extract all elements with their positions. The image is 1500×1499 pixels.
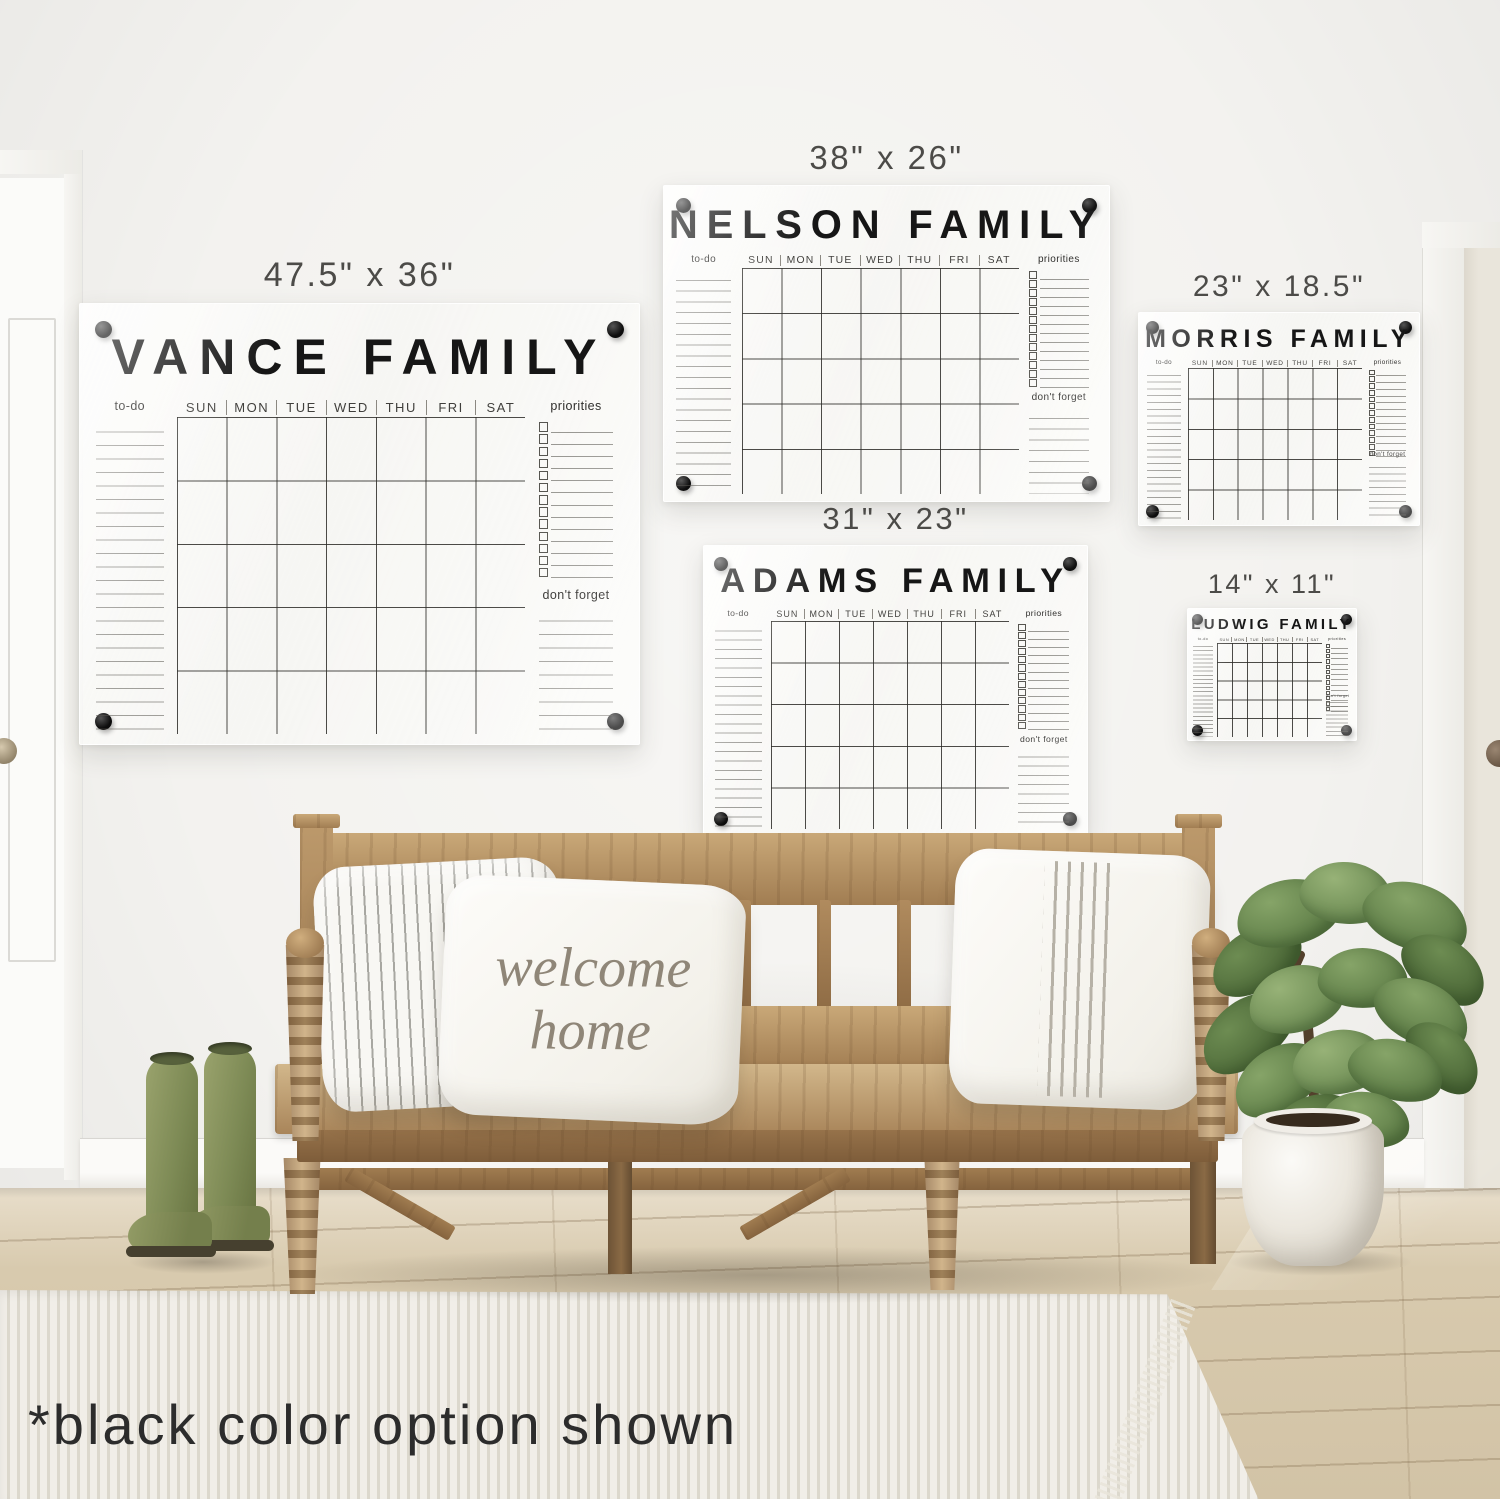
checkbox-icon — [1018, 689, 1025, 696]
day-label: SUN — [1188, 360, 1212, 367]
checkbox-icon — [1018, 640, 1025, 647]
caption-text: *black color option shown — [28, 1392, 738, 1457]
priority-item — [1369, 397, 1406, 404]
checkbox-icon — [1018, 714, 1025, 721]
bench-leg — [608, 1158, 632, 1274]
boot-opening — [150, 1052, 194, 1065]
day-label: FRI — [939, 255, 979, 266]
day-label: SUN — [177, 400, 226, 415]
todo-lines — [1147, 369, 1181, 521]
day-label: FRI — [426, 400, 476, 415]
boot-sole — [126, 1246, 216, 1257]
pillow-text-line1: welcome — [495, 936, 691, 1000]
todo-label: to-do — [676, 254, 730, 265]
dont-forget-label: don't forget — [1029, 392, 1088, 403]
day-label: SAT — [975, 609, 1009, 619]
day-label: TUE — [276, 400, 326, 415]
month-grid — [1188, 368, 1362, 521]
priority-item — [1018, 632, 1069, 640]
priority-item — [1018, 640, 1069, 648]
priorities-label: priorities — [539, 399, 614, 413]
day-label: THU — [1287, 360, 1312, 367]
checkbox-icon — [1369, 397, 1375, 403]
priority-item — [1029, 352, 1088, 361]
priority-item — [1018, 648, 1069, 656]
priorities-label: priorities — [1326, 637, 1348, 641]
bench-arm-knob — [286, 928, 324, 958]
dont-forget-lines — [1326, 699, 1348, 737]
checkbox-icon — [1029, 334, 1037, 342]
checkbox-icon — [1326, 654, 1330, 658]
priority-item — [539, 493, 614, 505]
day-label: THU — [899, 255, 939, 266]
checkbox-icon — [1369, 430, 1375, 436]
checkbox-icon — [539, 459, 549, 469]
dont-forget-lines — [1018, 748, 1069, 828]
weekday-header-row: SUNMONTUEWEDTHUFRISAT — [177, 399, 525, 417]
month-grid — [771, 621, 1009, 829]
todo-label: to-do — [96, 399, 164, 413]
bench-post-cap — [293, 814, 340, 828]
plant-pot-soil — [1266, 1113, 1360, 1127]
bench-spindle — [817, 900, 831, 1010]
priority-item — [1369, 444, 1406, 451]
day-label: FRI — [941, 609, 975, 619]
checkbox-icon — [1018, 656, 1025, 663]
day-label: SUN — [771, 609, 804, 619]
checkbox-icon — [539, 544, 549, 554]
checkbox-icon — [1029, 289, 1037, 297]
priority-item — [539, 421, 614, 433]
checkbox-icon — [1029, 280, 1037, 288]
checkbox-icon — [539, 568, 549, 578]
dont-forget-lines — [1369, 461, 1406, 521]
priority-item — [1369, 390, 1406, 397]
priority-item — [1029, 361, 1088, 370]
pillow-text-line2: home — [530, 999, 652, 1063]
priority-item — [1018, 673, 1069, 681]
checkbox-icon — [539, 532, 549, 542]
priority-item — [539, 518, 614, 530]
checkbox-icon — [1018, 697, 1025, 704]
calendar-content: to-do SUNMONTUEWEDTHUFRISAT priorities d… — [96, 399, 614, 735]
checkbox-icon — [539, 422, 549, 432]
acrylic-board: NELSON FAMILY to-do SUNMONTUEWEDTHUFRISA… — [663, 185, 1110, 502]
priority-item — [1029, 316, 1088, 325]
priority-item — [539, 566, 614, 578]
day-label: WED — [1262, 360, 1287, 367]
priorities-label: priorities — [1369, 359, 1406, 366]
plant-pot — [1242, 1116, 1384, 1266]
month-grid — [742, 268, 1019, 494]
priority-item — [1018, 624, 1069, 632]
bench-floor-shadow — [285, 1246, 1235, 1304]
checkbox-icon — [1018, 705, 1025, 712]
priority-item — [1018, 722, 1069, 730]
checkbox-icon — [1369, 383, 1375, 389]
bench-stretcher — [315, 1168, 1207, 1190]
calendar-content: to-do SUNMONTUEWEDTHUFRISAT priorities d… — [1147, 359, 1406, 521]
checkbox-icon — [1018, 632, 1025, 639]
month-grid — [1217, 643, 1322, 738]
priority-item — [1369, 410, 1406, 417]
family-name-title: VANCE FAMILY — [80, 328, 639, 386]
family-name-title: NELSON FAMILY — [664, 203, 1109, 248]
checkbox-icon — [1018, 681, 1025, 688]
door-panel — [8, 318, 56, 962]
dont-forget-label: don't forget — [1326, 694, 1348, 698]
calendar-morris: 23" x 18.5" MORRIS FAMILY to-do SUNMONTU… — [1138, 312, 1420, 526]
acrylic-board: VANCE FAMILY to-do SUNMONTUEWEDTHUFRISAT… — [79, 303, 640, 745]
checkbox-icon — [539, 519, 549, 529]
checkbox-icon — [539, 447, 549, 457]
dont-forget-lines — [539, 608, 614, 734]
checkbox-icon — [1029, 307, 1037, 315]
right-door-lintel — [1422, 222, 1500, 248]
checkbox-icon — [1369, 403, 1375, 409]
checkbox-line — [1028, 729, 1070, 730]
priority-item — [1369, 383, 1406, 390]
dont-forget-label: don't forget — [1369, 451, 1406, 458]
priority-item — [539, 542, 614, 554]
day-label: SAT — [1337, 360, 1362, 367]
checkbox-line — [1040, 387, 1089, 388]
checkbox-icon — [539, 434, 549, 444]
checkbox-icon — [1018, 624, 1025, 631]
priority-item — [1018, 664, 1069, 672]
checkbox-icon — [539, 556, 549, 566]
priority-item — [1029, 343, 1088, 352]
checkbox-line — [551, 577, 613, 578]
checkbox-icon — [1369, 390, 1375, 396]
priorities-checklist — [539, 421, 614, 579]
priorities-checklist — [1326, 644, 1348, 691]
calendar-content: to-do SUNMONTUEWEDTHUFRISAT priorities d… — [676, 254, 1088, 494]
checkbox-icon — [1018, 722, 1025, 729]
priority-item — [1029, 379, 1088, 388]
priority-item — [539, 506, 614, 518]
todo-label: to-do — [1193, 637, 1214, 641]
priority-item — [1018, 697, 1069, 705]
checkbox-icon — [1326, 686, 1330, 690]
priority-item — [1018, 714, 1069, 722]
day-label: SAT — [475, 400, 525, 415]
calendar-content: to-do SUNMONTUEWEDTHUFRISAT priorities d… — [715, 608, 1070, 829]
calendar-adams: 31" x 23" ADAMS FAMILY to-do SUNMONTUEWE… — [703, 545, 1088, 836]
checkbox-icon — [1029, 325, 1037, 333]
bench-leg — [1190, 1158, 1216, 1264]
pillow-welcome-home: welcome home — [437, 874, 747, 1127]
day-label: MON — [804, 609, 838, 619]
dont-forget-label: don't forget — [1018, 734, 1069, 744]
priorities-checklist — [1018, 624, 1069, 728]
day-label: TUE — [820, 255, 860, 266]
priority-item — [1369, 430, 1406, 437]
checkbox-icon — [1029, 316, 1037, 324]
priority-item — [1018, 681, 1069, 689]
checkbox-icon — [1029, 379, 1037, 387]
acrylic-board: ADAMS FAMILY to-do SUNMONTUEWEDTHUFRISAT… — [703, 545, 1088, 836]
day-label: TUE — [838, 609, 872, 619]
bench-apron — [297, 1130, 1218, 1162]
family-name-title: MORRIS FAMILY — [1139, 325, 1419, 354]
priorities-label: priorities — [1029, 254, 1088, 265]
checkbox-icon — [1369, 437, 1375, 443]
size-label: 23" x 18.5" — [1068, 270, 1491, 304]
priority-item — [539, 481, 614, 493]
bench-spindle — [897, 900, 911, 1010]
priority-item — [1369, 376, 1406, 383]
weekday-header-row: SUNMONTUEWEDTHUFRISAT — [771, 608, 1009, 620]
checkbox-icon — [1326, 665, 1330, 669]
todo-lines — [1193, 643, 1214, 737]
checkbox-icon — [1369, 417, 1375, 423]
checkbox-icon — [1029, 298, 1037, 306]
month-grid — [177, 417, 525, 735]
day-label: THU — [376, 400, 426, 415]
size-label: 14" x 11" — [1145, 569, 1400, 600]
priority-item — [1018, 705, 1069, 713]
calendar-vance: 47.5" x 36" VANCE FAMILY to-do SUNMONTUE… — [79, 303, 640, 745]
left-door — [0, 178, 64, 1168]
calendar-nelson: 38" x 26" NELSON FAMILY to-do SUNMONTUEW… — [663, 185, 1110, 502]
checkbox-icon — [1326, 680, 1330, 684]
priority-item — [1029, 370, 1088, 379]
day-label: WED — [860, 255, 900, 266]
day-label: SUN — [742, 255, 781, 266]
checkbox-icon — [539, 507, 549, 517]
priority-item — [1369, 370, 1406, 377]
priority-item — [539, 554, 614, 566]
priorities-label: priorities — [1018, 608, 1069, 618]
checkbox-icon — [1029, 271, 1037, 279]
checkbox-icon — [539, 483, 549, 493]
priority-item — [1029, 307, 1088, 316]
acrylic-board: LUDWIG FAMILY to-do SUNMONTUEWEDTHUFRISA… — [1187, 608, 1357, 741]
family-name-title: LUDWIG FAMILY — [1188, 616, 1356, 633]
day-label: THU — [907, 609, 941, 619]
boot-opening — [208, 1042, 252, 1055]
weekday-header-row: SUNMONTUEWEDTHUFRISAT — [742, 254, 1019, 268]
size-label: 38" x 26" — [551, 139, 1222, 177]
checkbox-icon — [539, 471, 549, 481]
bench-post-cap — [1175, 814, 1222, 828]
left-door-lintel — [0, 150, 82, 174]
weekday-header-row: SUNMONTUEWEDTHUFRISAT — [1188, 359, 1362, 368]
day-label: FRI — [1312, 360, 1337, 367]
dont-forget-label: don't forget — [539, 588, 614, 602]
day-label: MON — [780, 255, 820, 266]
priority-item — [1369, 437, 1406, 444]
checkbox-icon — [1018, 673, 1025, 680]
checkbox-icon — [1369, 444, 1375, 450]
calendar-content: to-do SUNMONTUEWEDTHUFRISAT priorities d… — [1193, 637, 1349, 737]
checkbox-icon — [1029, 370, 1037, 378]
checkbox-icon — [1326, 649, 1330, 653]
day-label: TUE — [1237, 360, 1262, 367]
product-photo-scene: 47.5" x 36" VANCE FAMILY to-do SUNMONTUE… — [0, 0, 1500, 1499]
checkbox-icon — [1369, 424, 1375, 430]
dont-forget-lines — [1029, 408, 1088, 494]
priorities-checklist — [1369, 370, 1406, 446]
todo-lines — [676, 270, 730, 495]
checkbox-icon — [1326, 675, 1330, 679]
todo-lines — [96, 419, 164, 735]
priority-item — [1369, 424, 1406, 431]
checkbox-icon — [1369, 410, 1375, 416]
checkbox-icon — [1326, 644, 1330, 648]
checkbox-icon — [1369, 376, 1375, 382]
priority-item — [1018, 689, 1069, 697]
day-label: MON — [226, 400, 276, 415]
todo-label: to-do — [715, 608, 762, 618]
day-label: WED — [326, 400, 376, 415]
priority-item — [539, 445, 614, 457]
size-label: 31" x 23" — [607, 501, 1185, 537]
day-label: SAT — [979, 255, 1019, 266]
priority-item — [1369, 417, 1406, 424]
day-label: MON — [1212, 360, 1237, 367]
checkbox-icon — [539, 495, 549, 505]
priority-item — [1018, 656, 1069, 664]
priority-item — [1029, 334, 1088, 343]
checkbox-icon — [1018, 664, 1025, 671]
priority-item — [1369, 403, 1406, 410]
acrylic-board: MORRIS FAMILY to-do SUNMONTUEWEDTHUFRISA… — [1138, 312, 1420, 526]
calendar-ludwig: 14" x 11" LUDWIG FAMILY to-do SUNMONTUEW… — [1187, 608, 1357, 741]
checkbox-icon — [1369, 370, 1375, 376]
checkbox-icon — [1018, 648, 1025, 655]
checkbox-icon — [1029, 343, 1037, 351]
pillow-grain-stripe — [948, 848, 1212, 1112]
checkbox-icon — [1326, 670, 1330, 674]
todo-lines — [715, 622, 762, 828]
priority-item — [539, 457, 614, 469]
priority-item — [539, 530, 614, 542]
priority-item — [1029, 325, 1088, 334]
day-label: WED — [872, 609, 906, 619]
family-name-title: ADAMS FAMILY — [704, 562, 1087, 601]
priority-item — [539, 469, 614, 481]
checkbox-icon — [1029, 361, 1037, 369]
priority-item — [539, 433, 614, 445]
todo-label: to-do — [1147, 359, 1181, 366]
checkbox-icon — [1029, 352, 1037, 360]
checkbox-icon — [1326, 659, 1330, 663]
